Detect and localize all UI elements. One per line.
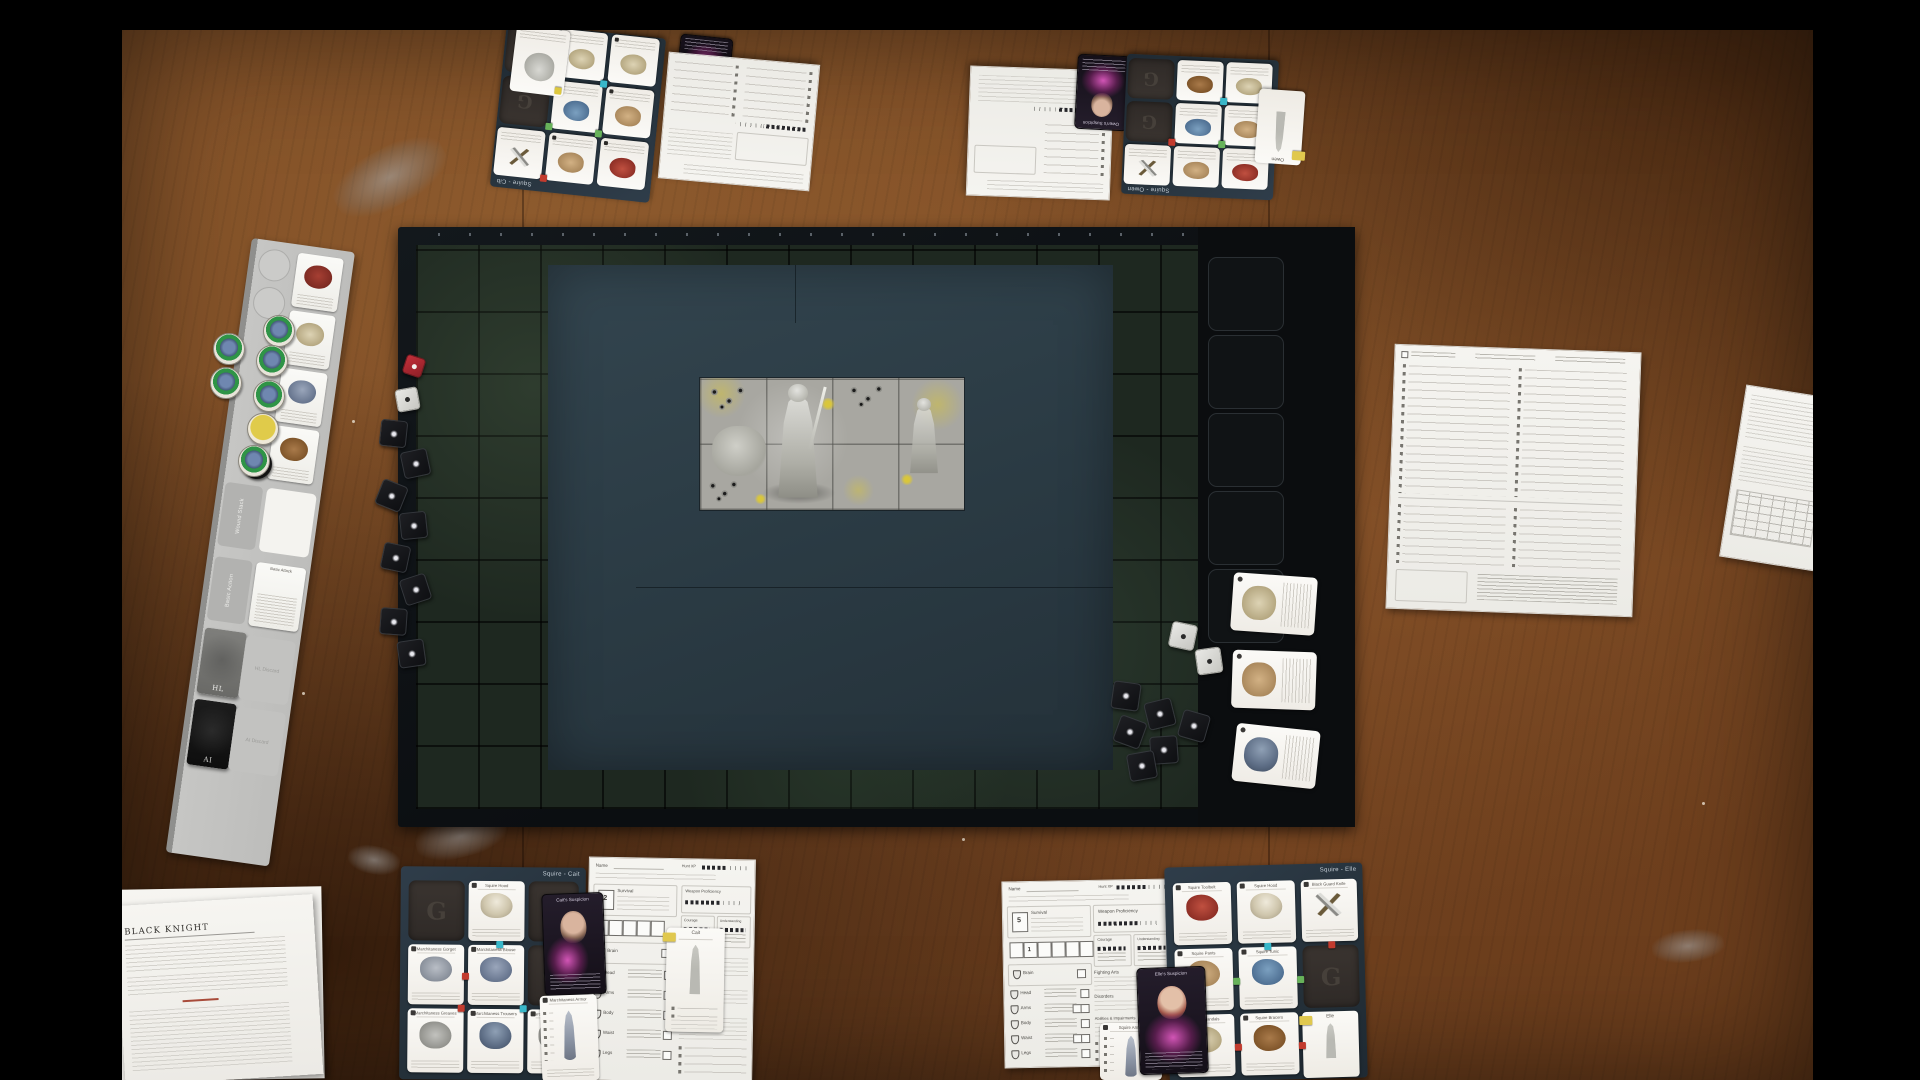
gear-card[interactable] — [596, 138, 649, 191]
shield-icon — [471, 1011, 476, 1016]
gear-art — [1134, 159, 1160, 177]
weapon-proficiency-section: Weapon Proficiency — [681, 885, 751, 914]
armor-checkbox[interactable] — [663, 1031, 672, 1040]
tray-card[interactable] — [291, 253, 344, 313]
gear-title: Squire Hood — [470, 883, 524, 888]
survival-value: 5 — [1017, 917, 1021, 924]
checklist-column — [1398, 363, 1510, 497]
green-marker-cube[interactable] — [1218, 141, 1225, 148]
card-text-lines — [1179, 932, 1228, 942]
stat-box[interactable] — [623, 920, 637, 936]
board-label: Squire - Cait — [543, 871, 580, 877]
red-marker-cube[interactable] — [1328, 941, 1335, 948]
card-illustration — [287, 378, 318, 405]
sheet-lines — [1009, 894, 1129, 902]
open-track — [1032, 107, 1056, 111]
miniature-photo — [1268, 106, 1291, 153]
black-die[interactable] — [379, 541, 411, 573]
gear-card[interactable]: Marchitaness Gorget — [408, 944, 465, 1004]
gear-art — [1185, 119, 1211, 137]
eyeball-cluster — [706, 478, 740, 504]
basic-attack-title: Basic Attack — [256, 564, 306, 576]
survival-section: 2 Survival — [593, 884, 678, 917]
shield-icon — [472, 883, 477, 888]
name-label: Name — [596, 864, 608, 869]
suspicion-card-owen[interactable]: Owen's Suspicion — [1074, 54, 1131, 132]
creature-illustration — [1242, 735, 1279, 773]
survival-token[interactable] — [213, 333, 245, 365]
understanding-label: Understanding — [1137, 938, 1159, 942]
black-die[interactable] — [399, 447, 431, 479]
stat-value: 1 — [1028, 947, 1031, 953]
card-text-lines — [1145, 1051, 1202, 1070]
gear-subtitle-rule — [478, 889, 516, 890]
survival-token[interactable] — [263, 315, 295, 347]
ai-discard-slot[interactable]: AI Discard — [228, 706, 286, 776]
gear-slot-letter: G — [408, 880, 465, 940]
wound-stack-label: Wound Stack — [217, 482, 264, 551]
white-die[interactable] — [1168, 621, 1199, 652]
gear-card[interactable]: Squire Bracers — [1240, 1012, 1300, 1075]
sheet-lines — [667, 128, 733, 159]
stat-box[interactable]: 1 — [1023, 942, 1037, 958]
gear-art — [481, 893, 513, 918]
shield-icon — [1241, 950, 1246, 955]
card-text-lines — [1177, 149, 1216, 160]
miniature-photo — [683, 944, 707, 1001]
body-text-lines — [125, 936, 286, 974]
brain-label: Brain — [607, 949, 618, 954]
shield-icon — [1011, 1050, 1019, 1059]
cyan-marker-cube[interactable] — [520, 1005, 527, 1012]
yellow-tag — [1292, 151, 1306, 161]
board-card-slot[interactable] — [1208, 491, 1284, 565]
black-die[interactable] — [379, 419, 409, 449]
gear-slot[interactable]: G — [1127, 58, 1175, 100]
red-marker-cube[interactable] — [1168, 139, 1175, 146]
survival-token[interactable] — [238, 445, 270, 477]
left-letterbox-bar — [0, 0, 122, 1080]
hl-discard-label: HL Discard — [238, 635, 296, 705]
gear-subtitle-rule — [1184, 956, 1223, 958]
icon-column — [1104, 1036, 1114, 1076]
gear-subtitle-rule — [477, 953, 515, 954]
sheet-lines — [627, 1009, 661, 1020]
card-text-lines — [1281, 583, 1313, 629]
shield-icon — [471, 947, 476, 952]
card-text-lines — [1282, 735, 1315, 782]
green-marker-cube[interactable] — [1297, 976, 1304, 983]
stat-box[interactable] — [1051, 941, 1065, 957]
gear-art — [505, 146, 534, 169]
armor-row-label: Legs — [603, 1051, 613, 1056]
black-die[interactable] — [399, 511, 429, 541]
open-track — [736, 122, 762, 128]
gear-card[interactable] — [607, 34, 660, 87]
gear-title: Marchitaness Trousers — [469, 1011, 523, 1016]
card-text-lines — [1128, 147, 1167, 158]
lock-icon — [552, 135, 556, 140]
fallen-statue-relief[interactable] — [712, 426, 766, 476]
black-die[interactable] — [396, 638, 426, 668]
gear-card[interactable] — [1176, 60, 1224, 102]
name-line — [1027, 890, 1079, 892]
paint-dot — [1702, 802, 1705, 805]
armor-checkbox[interactable] — [1081, 1049, 1090, 1058]
red-marker-cube[interactable] — [540, 174, 548, 182]
mini-card-elle[interactable]: Elle — [1302, 1011, 1360, 1078]
shield-icon — [1010, 990, 1018, 999]
shield-icon — [1103, 1025, 1108, 1030]
record-sheet-cib[interactable] — [658, 52, 820, 192]
wound-card[interactable] — [259, 488, 317, 558]
gear-art — [567, 48, 596, 71]
gear-card[interactable] — [545, 132, 598, 185]
body-text-lines — [127, 968, 288, 998]
revealed-stone-tiles[interactable] — [700, 378, 964, 510]
survival-label: Survival — [617, 889, 633, 894]
gear-title: Marchitaness Gorget — [409, 946, 463, 951]
body-text-lines — [129, 1002, 292, 1072]
card-text-lines — [604, 141, 645, 154]
gear-card[interactable]: Marchitaness Blouse — [468, 945, 525, 1005]
sheet-lines — [1098, 952, 1126, 962]
shield-icon — [1304, 882, 1309, 887]
armor-checkbox[interactable] — [1080, 989, 1089, 998]
header-text — [1475, 354, 1535, 361]
checklist-column — [1514, 367, 1626, 501]
red-marker-cube[interactable] — [462, 973, 469, 980]
card-text-lines — [1181, 63, 1220, 74]
card-corner-icon — [1237, 654, 1242, 659]
hidden-area-cover[interactable] — [548, 265, 1113, 770]
name-line — [614, 868, 664, 870]
creature-illustration — [1241, 661, 1276, 697]
card-text-lines — [1282, 658, 1312, 703]
rulebook-page[interactable]: BLACK KNIGHT — [115, 894, 324, 1080]
gear-card[interactable]: Squire Toolbelt — [1173, 882, 1233, 945]
open-track — [1140, 921, 1158, 925]
sheet-section — [1395, 569, 1468, 603]
mini-card-cait[interactable]: Cait — [665, 928, 725, 1033]
checklist-column — [1396, 503, 1506, 567]
sheet-lines — [627, 1029, 661, 1040]
token-circle-slot[interactable] — [256, 247, 292, 283]
red-marker-cube[interactable] — [1235, 1044, 1242, 1051]
gear-art — [1183, 162, 1209, 180]
survival-token[interactable] — [253, 380, 285, 412]
ai-deck-label: AI — [187, 753, 230, 767]
basic-action-label: Basic Action — [206, 556, 253, 625]
basic-attack-card[interactable]: Basic Attack — [248, 562, 306, 632]
eyeball-cluster — [706, 383, 748, 413]
sheet-lines — [683, 161, 804, 183]
gear-card[interactable]: Squire Hood — [468, 881, 525, 941]
gear-subtitle-rule — [1246, 888, 1285, 890]
armor-row-label: Legs — [1021, 1051, 1031, 1056]
creature-illustration — [1241, 584, 1277, 621]
gear-card[interactable]: Squire Tunic — [1238, 946, 1298, 1009]
armor-checkbox[interactable] — [1081, 1034, 1090, 1043]
hunt-xp-open — [730, 866, 750, 870]
sheet-lines — [1031, 917, 1083, 932]
cyan-marker-cube[interactable] — [496, 941, 503, 948]
gear-art — [1187, 76, 1213, 94]
card-text-lines — [412, 1060, 459, 1069]
gear-card[interactable]: Marchitaness Greaves — [407, 1008, 464, 1072]
gear-subtitle-rule — [1182, 890, 1221, 892]
shield-icon — [531, 1011, 536, 1016]
gear-art — [619, 53, 648, 76]
shield-icon — [411, 1010, 416, 1015]
green-marker-cube[interactable] — [1233, 978, 1240, 985]
yellow-tag — [663, 932, 676, 941]
basic-action-slot[interactable]: Basic Action — [206, 556, 253, 625]
shield-icon — [411, 946, 416, 951]
lock-icon — [615, 37, 619, 42]
gear-card[interactable] — [1174, 103, 1222, 145]
tabletop-scene: Wound Stack Basic Action Basic Attack HL… — [0, 0, 1920, 1080]
courage-section: Courage — [1093, 934, 1132, 967]
mini-card-owen[interactable]: Owen — [1254, 88, 1305, 165]
sheet-lines — [628, 969, 662, 980]
stat-box[interactable] — [637, 920, 651, 936]
armor-card-cait[interactable]: Marchitaness Armor — [540, 994, 600, 1080]
white-die[interactable] — [394, 386, 421, 413]
gear-slot[interactable]: G — [1302, 945, 1360, 1008]
filled-track — [685, 900, 721, 904]
card-corner-icon — [1237, 576, 1242, 581]
weapon-proficiency-label: Weapon Proficiency — [685, 889, 721, 894]
card-text-lines — [1306, 929, 1353, 939]
gear-art — [1253, 1025, 1286, 1052]
white-die[interactable] — [1194, 646, 1223, 675]
card-text-lines — [610, 89, 651, 102]
board-card-slot[interactable] — [1208, 257, 1284, 331]
green-marker-cube[interactable] — [545, 123, 553, 131]
card-text-lines — [520, 28, 566, 42]
shield-icon — [1176, 885, 1181, 890]
survival-label: Survival — [1031, 911, 1047, 916]
gear-art — [1236, 78, 1262, 96]
stat-box[interactable] — [609, 920, 623, 936]
icon-column — [543, 1011, 555, 1061]
sheet-lines — [596, 873, 716, 882]
stat-box[interactable] — [1065, 941, 1079, 957]
gear-art — [1250, 893, 1283, 920]
shield-icon — [1240, 884, 1245, 889]
sheet-lines — [627, 989, 661, 1000]
small-statue-miniature[interactable] — [900, 404, 948, 476]
red-marker-cube[interactable] — [1299, 1042, 1306, 1049]
shield-icon — [543, 998, 548, 1003]
armor-row-label: Body — [603, 1011, 613, 1016]
shield-icon — [1177, 951, 1182, 956]
sheet-lines — [626, 1049, 660, 1060]
black-die[interactable] — [1110, 680, 1142, 712]
fighting-arts-label: Fighting Arts — [1094, 970, 1119, 975]
showdown-board[interactable] — [398, 227, 1355, 827]
paint-dot — [352, 420, 355, 423]
board-label: Squire - Cib — [496, 177, 532, 187]
card-text-lines — [1179, 106, 1218, 117]
small-statue-head — [917, 398, 931, 411]
sheet-lines — [1477, 574, 1618, 605]
stat-box[interactable] — [1079, 941, 1093, 957]
knight-statue-head — [788, 384, 808, 402]
shield-icon — [1011, 1020, 1019, 1029]
gear-art — [480, 1022, 512, 1049]
black-die[interactable] — [379, 607, 408, 636]
stat-box[interactable] — [1037, 942, 1051, 958]
brain-label: Brain — [1023, 971, 1034, 976]
gear-card[interactable]: Marchitaness Trousers — [467, 1009, 524, 1073]
gear-slot[interactable]: G — [1125, 101, 1173, 143]
gear-slot-letter: G — [1125, 101, 1173, 143]
gear-art — [1251, 959, 1284, 986]
yellow-marker-cube[interactable] — [554, 87, 562, 95]
red-marker-cube[interactable] — [458, 1005, 465, 1012]
gear-card[interactable] — [1123, 144, 1171, 186]
gear-card-stand[interactable] — [509, 25, 571, 97]
survival-value: 2 — [603, 895, 607, 902]
shield-icon — [1011, 1005, 1019, 1014]
suspicion-card-elle[interactable]: Elle's Suspicion — [1136, 966, 1209, 1075]
lichen-patch — [900, 474, 914, 485]
abilities-label: Abilities & Impairments — [1095, 1016, 1136, 1021]
armor-checkbox[interactable] — [1081, 1019, 1090, 1028]
header-text — [1555, 356, 1625, 363]
gear-subtitle-rule — [1250, 1020, 1289, 1022]
gear-art — [1232, 164, 1258, 182]
card-text-lines — [1246, 1062, 1295, 1072]
gear-card[interactable] — [1172, 146, 1220, 188]
shield-icon — [1243, 1015, 1248, 1020]
cyan-marker-cube[interactable] — [600, 80, 608, 88]
checkbox-rows — [671, 60, 739, 117]
terrain-card[interactable] — [1231, 723, 1321, 789]
armor-row-label: Arms — [1021, 1006, 1032, 1011]
gear-art — [556, 151, 585, 174]
shield-icon — [1013, 970, 1021, 979]
terrain-card[interactable] — [1230, 572, 1318, 636]
armor-checkbox[interactable] — [662, 1051, 671, 1060]
black-die[interactable] — [1126, 750, 1158, 782]
hl-deck-label: HL — [197, 682, 240, 696]
sheet-section — [735, 132, 809, 166]
checkbox-rows — [742, 66, 812, 124]
gear-subtitle-rule — [549, 1002, 588, 1004]
gear-art — [420, 956, 452, 981]
armor-row-label: Waist — [1021, 1036, 1032, 1041]
sheet-lines — [1045, 1048, 1077, 1059]
survival-token[interactable] — [256, 345, 288, 377]
filled-track — [1098, 921, 1138, 925]
paint-dot — [962, 838, 965, 841]
subtitle-rule — [678, 939, 713, 941]
stat-box[interactable] — [1009, 942, 1023, 958]
player-board-owen[interactable]: Squire - Owen G G — [1121, 54, 1279, 200]
card-text-lines — [1243, 930, 1292, 940]
gear-art — [1313, 891, 1345, 918]
hl-discard-slot[interactable]: HL Discard — [238, 635, 296, 705]
weapon-proficiency-section: Weapon Proficiency — [1093, 904, 1171, 933]
hunt-xp-filled — [1116, 885, 1146, 889]
card-text-lines — [472, 993, 519, 1002]
card-text-lines — [1244, 996, 1293, 1006]
gear-art — [613, 105, 642, 128]
card-text-lines — [272, 466, 310, 481]
gear-art — [1186, 895, 1219, 922]
gear-art — [608, 157, 637, 180]
card-text-lines — [412, 992, 459, 1001]
yellow-token[interactable] — [247, 413, 279, 445]
armor-row-label: Body — [1021, 1021, 1031, 1026]
weapon-proficiency-label: Weapon Proficiency — [1098, 909, 1138, 914]
card-text-lines — [1082, 58, 1125, 72]
gear-art — [420, 1021, 452, 1048]
checklist-column — [1512, 507, 1622, 571]
shield-icon — [1011, 1035, 1019, 1044]
gear-slot[interactable]: G — [408, 880, 465, 940]
hunt-xp-label: Hunt XP — [682, 865, 696, 869]
gear-subtitle-rule — [1248, 954, 1287, 956]
board-card-slot[interactable] — [1208, 335, 1284, 409]
yellow-tag — [1299, 1016, 1312, 1025]
gear-art — [562, 100, 591, 123]
gear-card[interactable] — [602, 86, 655, 139]
cyan-marker-cube[interactable] — [1264, 943, 1271, 950]
card-illustration — [303, 264, 334, 291]
terrain-card[interactable] — [1231, 650, 1317, 711]
top-letterbox-bar — [0, 0, 1920, 30]
survival-token[interactable] — [210, 367, 242, 399]
disorders-label: Disorders — [1094, 995, 1113, 1000]
sheet-lines — [987, 177, 1103, 193]
card-text-lines — [501, 130, 542, 143]
knight-illustration — [557, 1010, 582, 1061]
board-card-slot[interactable] — [1208, 413, 1284, 487]
suspicion-card-cait[interactable]: Cait's Suspicion — [541, 892, 607, 996]
filled-track — [764, 125, 806, 132]
courage-label: Courage — [1097, 939, 1112, 943]
gear-subtitle-rule — [417, 952, 455, 953]
wound-stack-slot[interactable]: Wound Stack — [217, 482, 264, 551]
brain-checkbox[interactable] — [1077, 969, 1086, 978]
board-peg-strip — [438, 233, 1318, 236]
green-marker-cube[interactable] — [595, 130, 603, 138]
gear-art — [480, 957, 512, 982]
cyan-marker-cube[interactable] — [1220, 98, 1227, 105]
armor-checkbox[interactable] — [1081, 1004, 1090, 1013]
board-label: Squire - Owen — [1127, 185, 1169, 193]
gear-card[interactable]: Squire Hood — [1237, 880, 1297, 943]
card-text-lines — [288, 351, 326, 366]
card-illustration — [279, 436, 310, 463]
paint-dot — [302, 692, 305, 695]
suspicion-title: Elle's Suspicion — [1137, 970, 1204, 977]
brain-section: Brain — [1008, 963, 1092, 986]
gear-card[interactable]: Black Guard Knife — [1301, 879, 1359, 942]
armor-row-label: Head — [1020, 991, 1031, 996]
ai-discard-label: AI Discard — [228, 706, 286, 776]
armor-row-label: Waist — [603, 1031, 614, 1036]
reference-sheet[interactable] — [1385, 344, 1641, 617]
checkbox-rows — [678, 1045, 747, 1076]
miniature-photo — [1319, 1023, 1342, 1063]
header-checkbox — [1401, 351, 1408, 358]
gear-card[interactable] — [493, 127, 546, 180]
